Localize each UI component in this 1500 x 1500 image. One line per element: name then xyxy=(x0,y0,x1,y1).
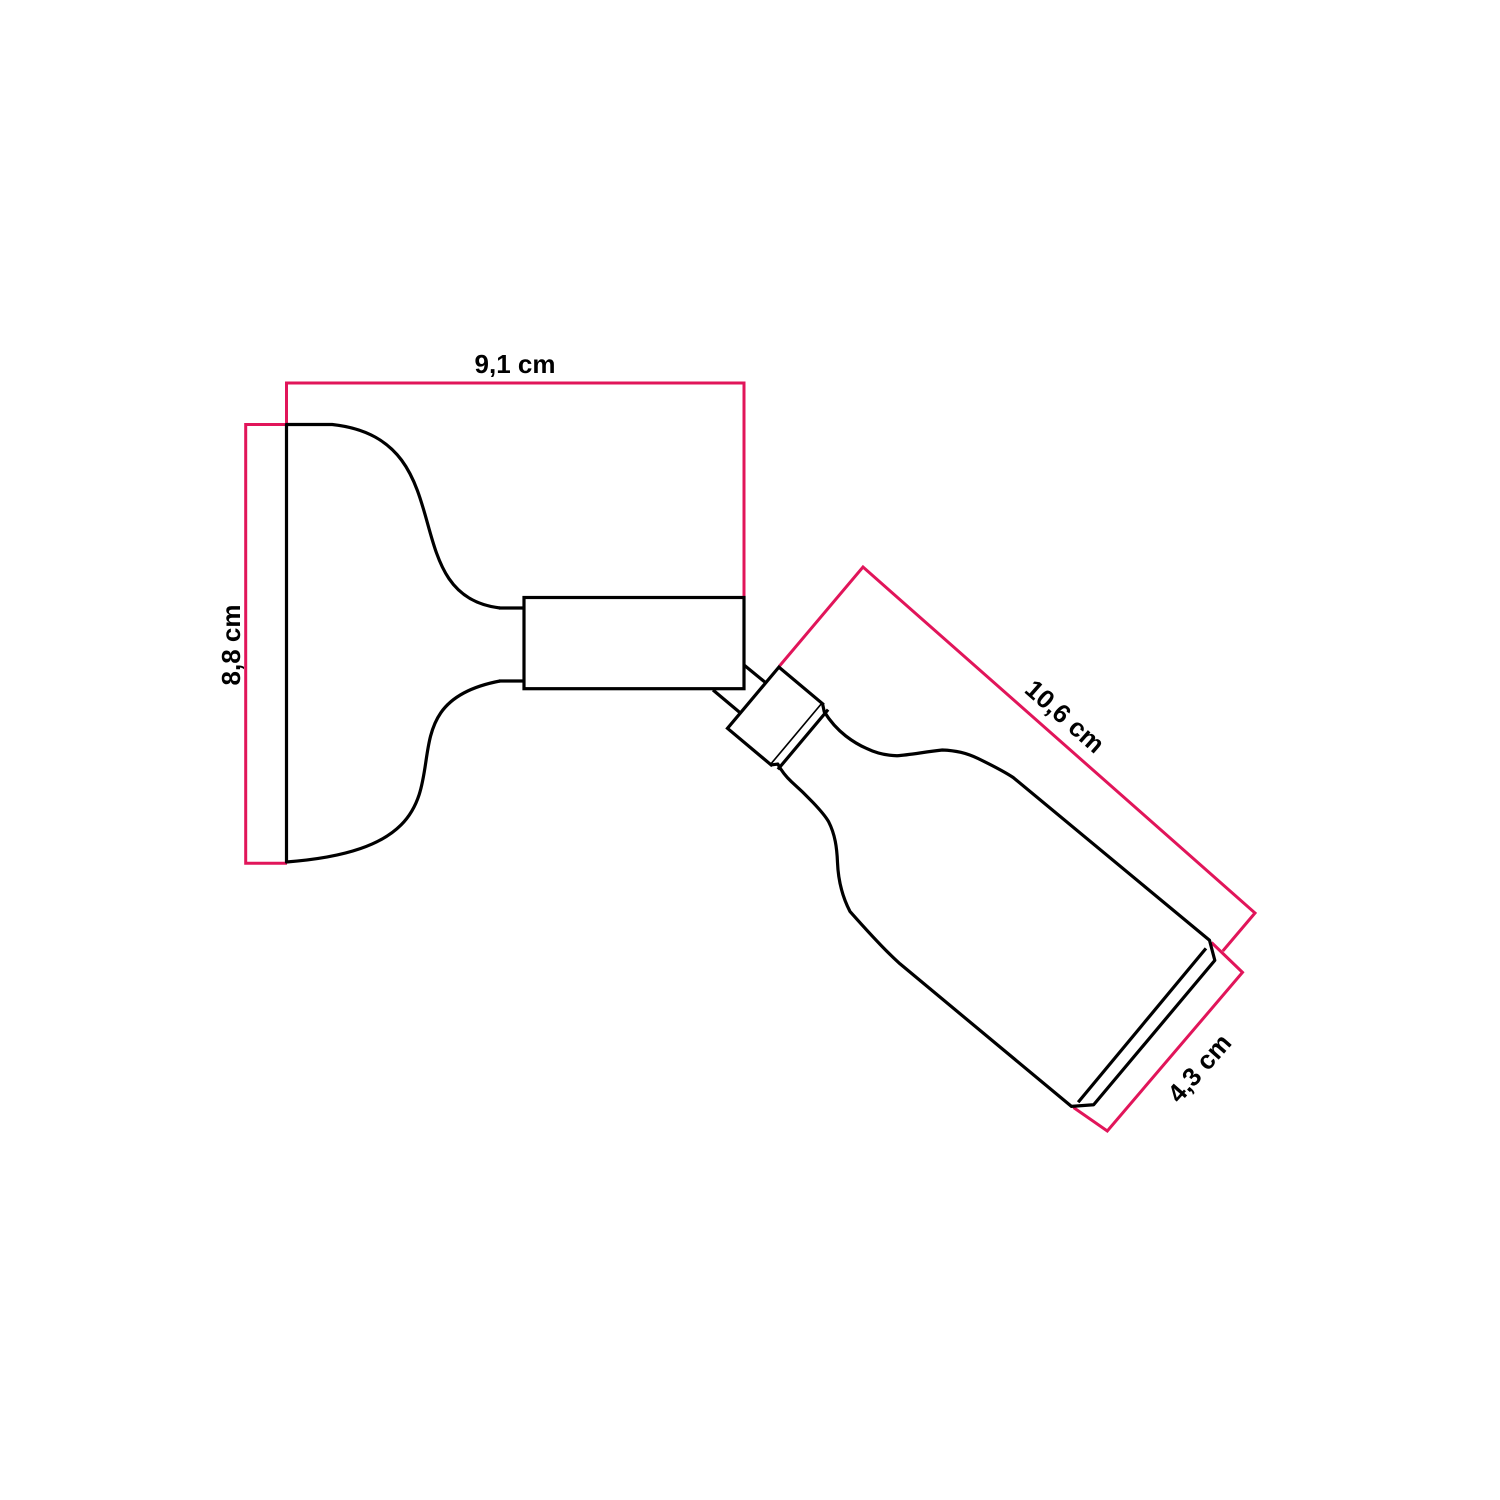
svg-text:8,8 cm: 8,8 cm xyxy=(216,605,246,686)
svg-text:9,1 cm: 9,1 cm xyxy=(475,349,556,379)
